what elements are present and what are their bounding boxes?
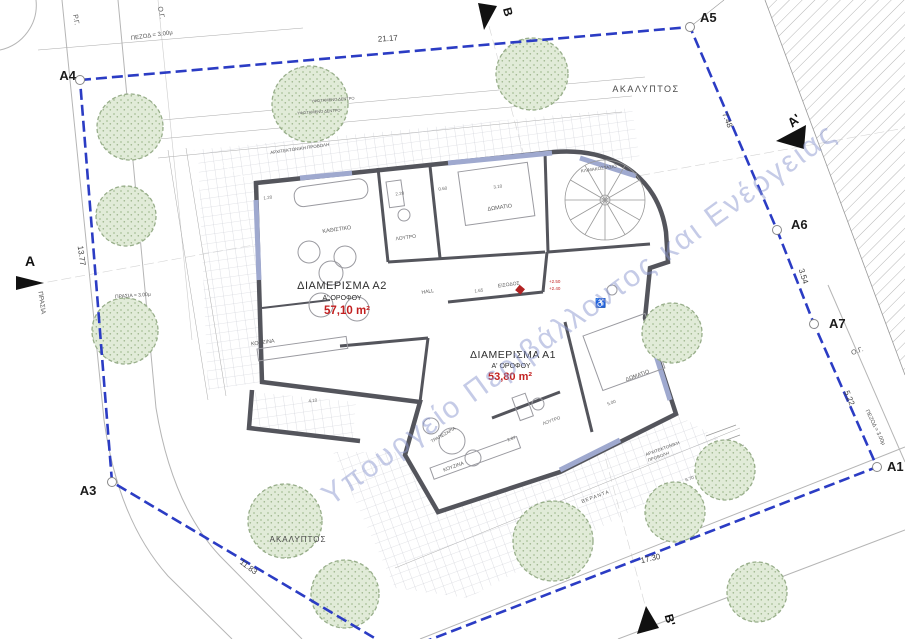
- section-label-a: A: [25, 253, 35, 269]
- tree: [645, 482, 705, 542]
- sidewalk-dim-top: ΠΕΖΟΔ = 3.00μ: [131, 30, 174, 42]
- corner-label-a7: A7: [829, 316, 846, 331]
- tree: [97, 94, 163, 160]
- section-label-a-prime: A': [785, 111, 804, 131]
- road-corner-arc: [0, 0, 36, 50]
- section-arrow-b-prime: [637, 606, 659, 634]
- tree: [642, 303, 702, 363]
- section-label-b-prime: B': [662, 613, 679, 628]
- area-label-akalyptos-bottom: ΑΚΑΛΥΠΤΟΣ: [270, 535, 327, 544]
- green-strip-label-left: ΠΡΑΣΙΑ: [36, 291, 46, 315]
- apartment-a2-title: ΔΙΑΜΕΡΙΣΜΑ Α2: [297, 280, 387, 292]
- site-plan-svg: A4A5A6A7A1A3AA'BB'21.177.483.545.2217.30…: [0, 0, 905, 639]
- tree: [96, 186, 156, 246]
- street-line-label-top: Ρ.Γ.: [71, 14, 80, 26]
- boundary-dim-left: 13.77: [76, 245, 88, 267]
- tree: [513, 501, 593, 581]
- level-value-lower: +2.40: [549, 286, 561, 291]
- section-arrow-a: [16, 276, 44, 290]
- terrace-left: [198, 152, 262, 390]
- floor-plan-drawing: A4A5A6A7A1A3AA'BB'21.177.483.545.2217.30…: [0, 0, 905, 639]
- apartment-a2-floor: Α' ΟΡΟΦΟΥ: [323, 295, 362, 302]
- sidewalk-dim-right: ΠΕΖΟΔ = 3.00μ: [864, 409, 886, 446]
- boundary-dim-a7-a1: 5.22: [842, 389, 857, 407]
- tree: [496, 38, 568, 110]
- section-label-b: B: [500, 6, 516, 18]
- tree: [695, 440, 755, 500]
- building-line-label-right: Ο.Γ.: [850, 346, 864, 357]
- building-line-label-top: Ο.Γ.: [156, 6, 165, 20]
- level-value-upper: +2.50: [549, 279, 561, 284]
- apartment-a2-area: 57,10 m²: [324, 305, 370, 317]
- section-arrow-b: [478, 3, 497, 30]
- tree: [248, 484, 322, 558]
- building-line-left: [158, 0, 192, 340]
- tree: [311, 560, 379, 628]
- corner-label-a4: A4: [59, 68, 76, 83]
- corner-label-a6: A6: [791, 217, 808, 232]
- tree: [272, 66, 348, 142]
- boundary-dim-bottom-right: 17.30: [640, 552, 662, 565]
- corner-label-a5: A5: [700, 10, 717, 25]
- corner-label-a3: A3: [80, 483, 97, 498]
- tree: [727, 562, 787, 622]
- boundary-dim-bottom-left: 11.83: [238, 558, 259, 577]
- boundary-dim-top: 21.17: [378, 33, 399, 43]
- area-label-akalyptos-top: ΑΚΑΛΥΠΤΟΣ: [612, 84, 679, 94]
- corner-label-a1: A1: [887, 459, 904, 474]
